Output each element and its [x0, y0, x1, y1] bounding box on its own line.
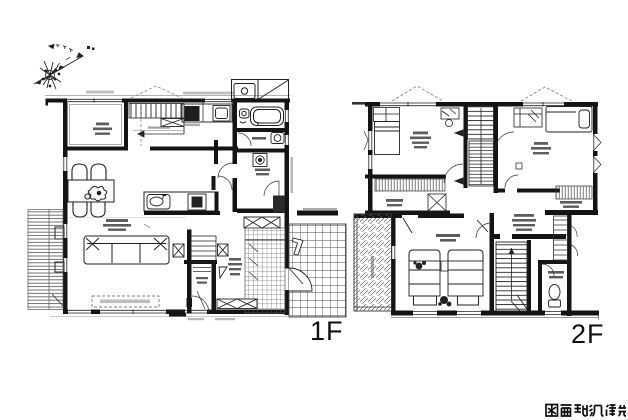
- svg-text:1F: 1F: [310, 316, 344, 346]
- svg-text:2F: 2F: [571, 319, 605, 349]
